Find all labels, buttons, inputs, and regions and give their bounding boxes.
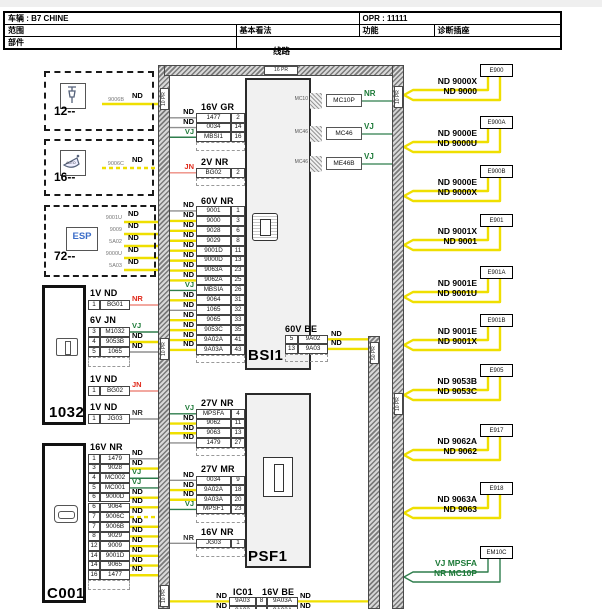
pin-row: MBSIA26: [196, 285, 245, 295]
pin-group-header: 27V NR: [201, 398, 234, 408]
wire-code: 9006C: [94, 161, 124, 167]
connector-1032-label: 1032: [49, 404, 84, 421]
table-cell: 13: [285, 344, 298, 354]
ground-box-E901: E901: [480, 214, 513, 227]
table-cell: 9065: [100, 561, 130, 571]
splice-hatch-icon: [310, 156, 322, 172]
table-cell: 23: [231, 266, 245, 276]
table-cell: 1065: [100, 347, 130, 357]
wire-color-label: ND: [132, 526, 143, 534]
wire-color-label: ND: [132, 507, 143, 515]
pin-row: MPSFA4: [196, 409, 245, 419]
table-cell: 1479: [100, 454, 130, 464]
ground-wire-label: ND 9001X: [390, 336, 477, 346]
ground-wire-label: ND 9000: [390, 86, 477, 96]
table-cell: 9A03: [298, 344, 328, 354]
splice-hatch-icon: [310, 126, 322, 142]
wire-color-label: VJ: [364, 123, 374, 131]
bsi1-label: BSI1: [248, 347, 283, 364]
wire-color-label: ND: [132, 449, 143, 457]
wire-color-label: ND: [132, 342, 143, 350]
wire-color-label: ND: [170, 251, 194, 259]
wire-color-label: ND: [209, 602, 227, 609]
wire-color-label: ND: [170, 108, 194, 116]
wire-color-label: ND: [170, 271, 194, 279]
connector-c001-icon-slot: [58, 511, 75, 519]
pin-group-header: 6V JN: [90, 315, 116, 325]
wire-color-label: NR: [170, 534, 194, 542]
ground-box-E918: E918: [480, 482, 513, 495]
table-cell: 9A02A: [196, 335, 231, 345]
splice-box: MC10P: [326, 94, 362, 107]
table-cell: 4: [231, 409, 245, 419]
table-cell: 2: [231, 113, 245, 123]
pin-row: 00349: [196, 476, 245, 486]
table-cell: 6: [88, 493, 100, 503]
wire-color-label: ND: [132, 459, 143, 467]
ground-wire-label: ND 9000X: [390, 76, 477, 86]
wire-color-label: ND: [331, 330, 342, 338]
table-cell: 9A03A: [267, 597, 298, 607]
ground-box-EM10C: EM10C: [480, 546, 513, 559]
table-cell: MPSF1: [196, 505, 231, 515]
table-cell: 9029: [196, 236, 231, 246]
ground-wire-label: ND 9063: [390, 504, 477, 514]
pin-row: 9063A23: [196, 266, 245, 276]
table-cell: 23: [231, 505, 245, 515]
table-cell: 1: [88, 386, 100, 396]
table-cell: 4: [88, 337, 100, 347]
component-label: 16--: [54, 170, 75, 184]
table-cell: M1032: [100, 327, 130, 337]
pin-row: 147927: [196, 438, 245, 448]
table-cell: 14: [231, 123, 245, 133]
dashed-continuation: [196, 178, 245, 187]
table-cell: 9001D: [100, 551, 130, 561]
pin-row: 4MC002: [88, 473, 130, 483]
connector-c001-label: C001: [47, 585, 85, 602]
wire-color-label: ND: [128, 210, 139, 218]
wire-color-label: ND: [170, 301, 194, 309]
table-cell: 8: [231, 236, 245, 246]
splice-hatch-icon: [310, 93, 322, 109]
wire-color-label: NR: [364, 90, 376, 98]
dashed-continuation: [196, 514, 245, 523]
table-cell: 14: [88, 561, 100, 571]
wire-color-label: ND: [170, 481, 194, 489]
wire-code: 9001U: [92, 215, 122, 221]
wire-color-label: ND: [170, 221, 194, 229]
ground-box-E900B: E900B: [480, 165, 513, 178]
table-cell: 0034: [196, 123, 231, 133]
pin-row: 9A02A18: [196, 485, 245, 495]
wire-color-label: ND: [132, 488, 143, 496]
table-cell: 9A02: [298, 335, 328, 345]
pin-row: 90011: [196, 206, 245, 216]
table-cell: MBSI1: [196, 132, 231, 142]
table-cell: 16: [231, 132, 245, 142]
pin-row: 39028: [88, 464, 130, 474]
wire-color-label: ND: [170, 414, 194, 422]
table-cell: 1: [231, 539, 245, 549]
table-cell: 3: [231, 216, 245, 226]
wire-color-label: ND: [170, 311, 194, 319]
harness-right-label: 10 PR: [394, 393, 403, 415]
table-cell: 8: [256, 597, 267, 607]
table-cell: 43: [231, 345, 245, 355]
pin-group-header: 16V NR: [201, 527, 234, 537]
wire-color-label: ND: [128, 246, 139, 254]
table-cell: 7: [88, 512, 100, 522]
ic01-label: IC01: [233, 587, 253, 597]
pin-row: 149001D: [88, 551, 130, 561]
table-cell: MC002: [100, 473, 130, 483]
table-cell: 9062A: [196, 276, 231, 286]
wire-color-label: ND: [128, 222, 139, 230]
pin-row: 906211: [196, 419, 245, 429]
pin-row: 139A03: [285, 344, 328, 354]
psf1-icon-slot: [274, 464, 284, 492]
pin-row: 9053C35: [196, 325, 245, 335]
table-cell: 18: [231, 485, 245, 495]
pin-group-header: 1V ND: [90, 402, 118, 412]
pin-row: 906431: [196, 295, 245, 305]
dashed-continuation: [196, 448, 245, 457]
table-cell: BG01: [100, 300, 130, 310]
dashed-continuation: [88, 357, 130, 367]
pin-row: 79006B: [88, 522, 130, 532]
wire-code: 5A02: [92, 239, 122, 245]
table-cell: 13: [231, 256, 245, 266]
connector-c001-box: [42, 443, 86, 603]
table-cell: 9A02A: [196, 485, 231, 495]
wire-color-label: JN: [132, 381, 142, 389]
wire-color-label: ND: [170, 433, 194, 441]
table-cell: 9064: [100, 503, 130, 513]
svg-text:AUTO: AUTO: [66, 161, 76, 165]
table-cell: 6: [88, 503, 100, 513]
table-cell: 27: [231, 438, 245, 448]
table-cell: 35: [231, 325, 245, 335]
wire-color-label: VJ: [170, 500, 194, 508]
ground-wire-label: ND 9063A: [390, 494, 477, 504]
table-cell: 2: [231, 168, 245, 178]
wire-code: 5A03: [92, 263, 122, 269]
table-cell: 9A03A: [196, 495, 231, 505]
pin-row: 9001D11: [196, 246, 245, 256]
pin-row: 9000D13: [196, 256, 245, 266]
splice-box: MC46: [326, 127, 362, 140]
ground-wire-label: NR MC10P: [390, 568, 477, 578]
table-cell: 7: [88, 522, 100, 532]
pin-row: 906533: [196, 315, 245, 325]
harness-left-label: 10 PR: [160, 585, 169, 607]
pin-row: 49053B: [88, 337, 130, 347]
wire-color-label: NR: [132, 295, 143, 303]
pin-group-header: 16V NR: [90, 442, 123, 452]
splice-tag: MC10: [288, 96, 308, 102]
wire-color-label: ND: [331, 339, 342, 347]
wire-color-label: ND: [128, 234, 139, 242]
table-cell: MBSIA: [196, 285, 231, 295]
connector-1032-icon-slot: [65, 341, 71, 355]
wire-color-label: ND: [170, 321, 194, 329]
wire-color-label: ND: [170, 291, 194, 299]
wire-color-label: ND: [132, 332, 143, 340]
table-cell: 9062: [196, 419, 231, 429]
wire-color-label: NR: [132, 409, 143, 417]
table-cell: 9000D: [100, 493, 130, 503]
table-cell: 11: [231, 246, 245, 256]
wire-color-label: ND: [170, 490, 194, 498]
ic01-header: 16V BE: [262, 587, 294, 597]
table-cell: 4: [88, 473, 100, 483]
pin-row: 11479: [88, 454, 130, 464]
table-cell: 1: [88, 300, 100, 310]
pin-row: 69064: [88, 503, 130, 513]
ground-wire-label: ND 9001E: [390, 326, 477, 336]
wire-color-label: ND: [132, 497, 143, 505]
table-cell: 33: [231, 315, 245, 325]
psf1-label: PSF1: [248, 548, 288, 565]
table-cell: 9053B: [100, 337, 130, 347]
table-cell: 9001: [196, 206, 231, 216]
table-cell: 3: [88, 327, 100, 337]
table-cell: 9009: [100, 541, 130, 551]
wire-color-label: ND: [132, 92, 143, 100]
pin-row: 90003: [196, 216, 245, 226]
table-cell: 12: [88, 541, 100, 551]
table-cell: 9: [231, 476, 245, 486]
wire-color-label: VJ: [132, 478, 141, 486]
pin-row: 161477: [88, 570, 130, 580]
pin-row: 59A02: [285, 335, 328, 345]
plug-glyph: [61, 84, 83, 106]
dashed-continuation: [196, 142, 245, 151]
pin-row: 89029: [88, 532, 130, 542]
table-cell: 1: [88, 454, 100, 464]
pin-group-header: 27V MR: [201, 464, 235, 474]
dashed-continuation: [196, 355, 245, 364]
wire-color-label: ND: [170, 201, 194, 209]
harness-top-label: 16 PR: [264, 66, 298, 75]
ground-wire-label: ND 9001E: [390, 278, 477, 288]
wire-color-label: JN: [170, 163, 194, 171]
ground-wire-label: ND 9000X: [390, 187, 477, 197]
wire-color-label: ND: [128, 258, 139, 266]
wire-color-label: ND: [170, 340, 194, 348]
pin-group-header: 1V ND: [90, 288, 118, 298]
ground-box-E901B: E901B: [480, 314, 513, 327]
component-label: 12--: [54, 104, 75, 118]
table-cell: 8: [88, 532, 100, 542]
pin-row: 14772: [196, 113, 245, 123]
ground-box-E901A: E901A: [480, 266, 513, 279]
wire-color-label: ND: [132, 536, 143, 544]
table-cell: JG03: [196, 539, 231, 549]
table-cell: 5: [285, 335, 298, 345]
wire-color-label: ND: [132, 517, 143, 525]
wire-color-label: ND: [170, 261, 194, 269]
wire-color-label: VJ: [170, 404, 194, 412]
splice-box: ME46B: [326, 157, 362, 170]
wire-color-label: ND: [132, 556, 143, 564]
pin-row: 9A0389A03A: [229, 597, 298, 607]
harness-inner-label: 50 PR: [370, 342, 379, 364]
pin-row: 9A03A20: [196, 495, 245, 505]
connector-c001-icon: [54, 505, 78, 523]
wire-code: 9000U: [92, 251, 122, 257]
table-cell: 13: [231, 428, 245, 438]
table-cell: 9000D: [196, 256, 231, 266]
wire-color-label: ND: [300, 592, 311, 600]
table-cell: 9028: [196, 226, 231, 236]
table-cell: 6: [231, 226, 245, 236]
pin-row: 5MC001: [88, 483, 130, 493]
wire-color-label: ND: [132, 546, 143, 554]
wire-code: 9006B: [94, 97, 124, 103]
pin-row: 1BG01: [88, 300, 130, 310]
ground-wire-label: ND 9001: [390, 236, 477, 246]
pin-row: 69000D: [88, 493, 130, 503]
table-cell: 14: [88, 551, 100, 561]
table-cell: 26: [231, 285, 245, 295]
wiring-diagram-page: 车辆 : B7 CHINE OPR : 11111 范围 基本看法 功能 诊断插…: [0, 0, 602, 609]
harness-left-label: 10 PR: [160, 88, 169, 110]
ground-box-E900: E900: [480, 64, 513, 77]
dashed-continuation: [88, 580, 130, 590]
pin-group-header: 1V ND: [90, 374, 118, 384]
pin-group-header: 16V GR: [201, 102, 234, 112]
diagram-canvas: 16 PR10 PR10 PR10 PR10 PR10 PR50 PR12--9…: [0, 0, 602, 609]
wire-color-label: ND: [170, 211, 194, 219]
wire-color-label: ND: [209, 592, 227, 600]
ground-box-E900A: E900A: [480, 116, 513, 129]
wire-color-label: ND: [170, 231, 194, 239]
wire-color-label: ND: [132, 565, 143, 573]
table-cell: 9029: [100, 532, 130, 542]
bsi1-icon-slot: [260, 219, 271, 236]
table-cell: JG03: [100, 414, 130, 424]
wire-color-label: VJ: [132, 322, 141, 330]
table-cell: 9063A: [196, 266, 231, 276]
table-cell: 9053C: [196, 325, 231, 335]
table-cell: 9001D: [196, 246, 231, 256]
pin-row: MPSF123: [196, 505, 245, 515]
pin-row: 149065: [88, 561, 130, 571]
splice-tag: MC46: [288, 129, 308, 135]
wire-color-label: ND: [170, 471, 194, 479]
table-cell: 9065: [196, 315, 231, 325]
wire-code: 9009: [92, 227, 122, 233]
pin-row: 79006C: [88, 512, 130, 522]
ground-wire-label: ND 9000E: [390, 177, 477, 187]
wire-color-label: ND: [170, 331, 194, 339]
wire-color-label: VJ: [132, 468, 141, 476]
ground-wire-label: ND 9001U: [390, 288, 477, 298]
table-cell: 0034: [196, 476, 231, 486]
ground-wire-label: ND 9001X: [390, 226, 477, 236]
wire-color-label: VJ: [364, 153, 374, 161]
table-cell: 9006C: [100, 512, 130, 522]
dashed-continuation: [196, 548, 245, 557]
table-cell: 9064: [196, 295, 231, 305]
table-cell: BG02: [100, 386, 130, 396]
table-cell: 1477: [196, 113, 231, 123]
pin-row: 1JG03: [88, 414, 130, 424]
table-cell: 5: [88, 483, 100, 493]
table-cell: MPSFA: [196, 409, 231, 419]
harness-inner-bar: [368, 336, 380, 609]
table-cell: 1: [88, 414, 100, 424]
pin-row: 90286: [196, 226, 245, 236]
pin-row: 003414: [196, 123, 245, 133]
wire-color-label: ND: [170, 118, 194, 126]
pin-row: 3M1032: [88, 327, 130, 337]
wire-color-label: ND: [170, 241, 194, 249]
ground-wire-label: VJ MPSFA: [390, 558, 477, 568]
table-cell: 1065: [196, 305, 231, 315]
ground-wire-label: ND 9000E: [390, 128, 477, 138]
ground-wire-label: ND 9053B: [390, 376, 477, 386]
pin-row: 9A02A41: [196, 335, 245, 345]
wire-color-label: ND: [300, 602, 311, 609]
pin-row: 1BG02: [88, 386, 130, 396]
table-cell: 9028: [100, 464, 130, 474]
harness-left-label: 10 PR: [160, 338, 169, 360]
pin-group-header: 60V NR: [201, 196, 234, 206]
pin-row: 51065: [88, 347, 130, 357]
table-cell: 9000: [196, 216, 231, 226]
wire-color-label: VJ: [170, 281, 194, 289]
ground-wire-label: ND 9062A: [390, 436, 477, 446]
pin-row: 9A03A43: [196, 345, 245, 355]
table-cell: 9A03A: [196, 345, 231, 355]
table-cell: 5: [88, 347, 100, 357]
table-cell: 11: [231, 419, 245, 429]
table-cell: 1477: [100, 570, 130, 580]
wire-color-label: ND: [170, 424, 194, 432]
pin-row: MBSI116: [196, 132, 245, 142]
table-cell: 1479: [196, 438, 231, 448]
table-cell: 31: [231, 295, 245, 305]
psf1-icon: [263, 457, 293, 497]
pin-row: 129009: [88, 541, 130, 551]
ground-wire-label: ND 9053C: [390, 386, 477, 396]
pin-group-header: 60V BE: [285, 324, 317, 334]
wire-color-label: VJ: [170, 128, 194, 136]
table-cell: 9006B: [100, 522, 130, 532]
table-cell: 3: [88, 464, 100, 474]
table-cell: BG02: [196, 168, 231, 178]
component-label: 72--: [54, 249, 75, 263]
table-cell: 32: [231, 305, 245, 315]
harness-left-bar: [158, 65, 170, 609]
ground-box-E917: E917: [480, 424, 513, 437]
table-cell: 20: [231, 495, 245, 505]
pin-group-header: 2V NR: [201, 157, 229, 167]
pin-row: 106532: [196, 305, 245, 315]
bsi1-icon: [252, 213, 278, 241]
splice-tag: MC46: [288, 159, 308, 165]
pin-row: BG022: [196, 168, 245, 178]
pin-row: 90298: [196, 236, 245, 246]
dashed-continuation: [285, 354, 328, 363]
ground-wire-label: ND 9062: [390, 446, 477, 456]
pin-row: 906313: [196, 428, 245, 438]
connector-1032-icon: [56, 338, 78, 356]
pin-row: JG031: [196, 539, 245, 549]
